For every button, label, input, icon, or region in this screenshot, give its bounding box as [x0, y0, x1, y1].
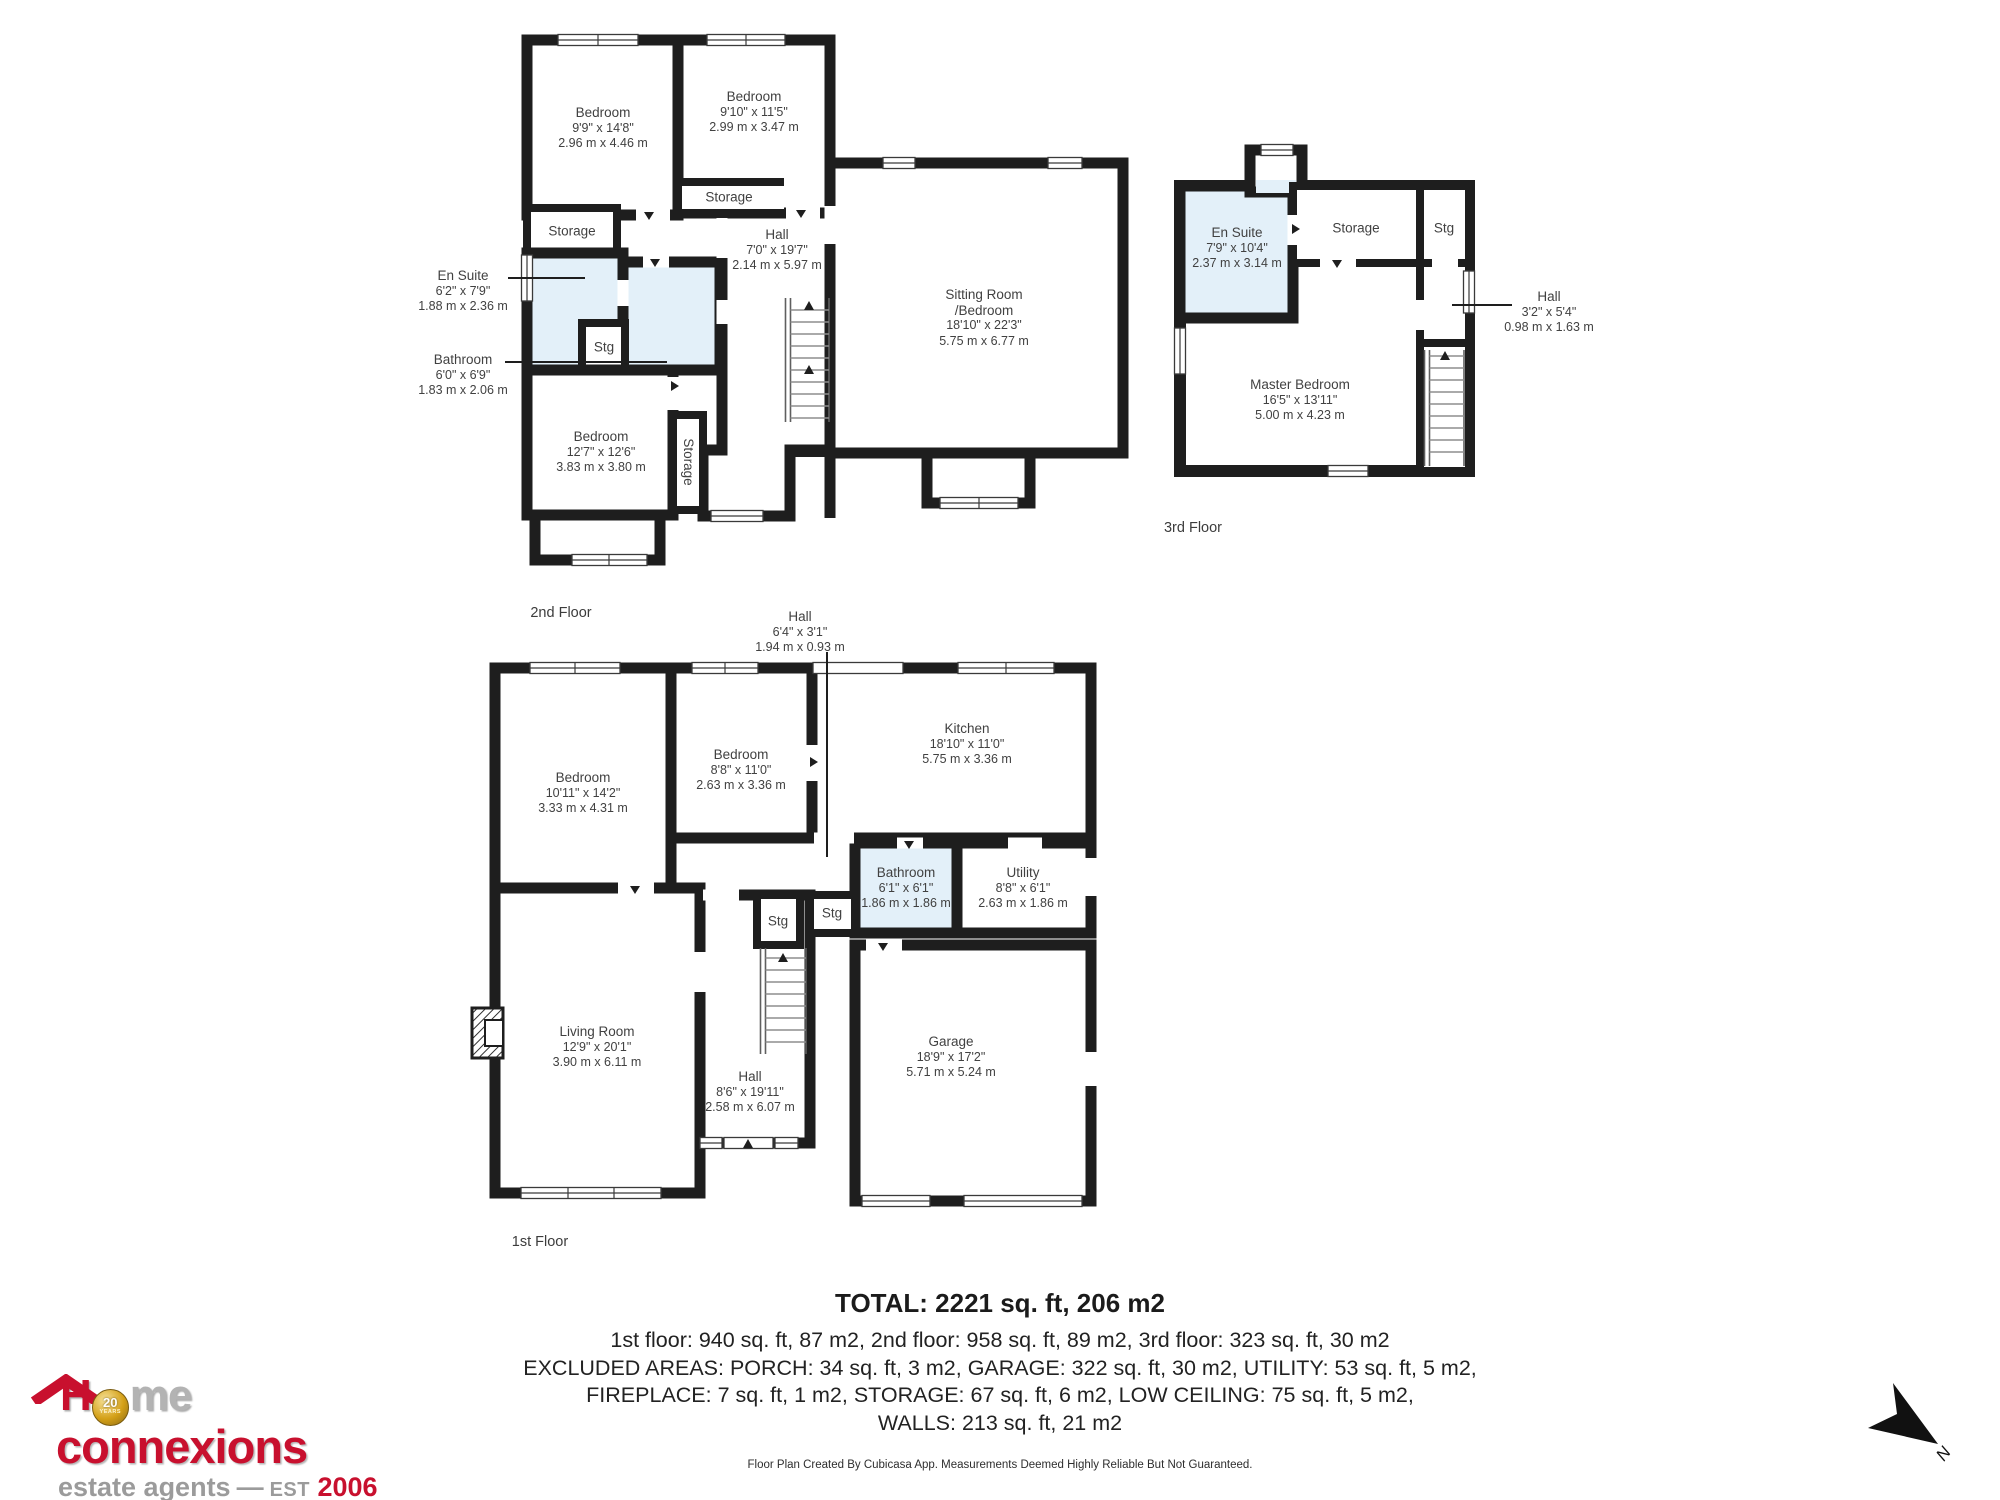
- room-label-f1-hall-upper: Hall 6'4" x 3'1" 1.94 m x 0.93 m: [755, 609, 845, 656]
- room-label-f2-bedroom-top-right: Bedroom 9'10" x 11'5" 2.99 m x 3.47 m: [709, 89, 799, 136]
- floor2-bathroom-room: [623, 262, 720, 370]
- room-label-f2-ensuite: En Suite 6'2" x 7'9" 1.88 m x 2.36 m: [418, 268, 508, 315]
- floor3-hall-room: [1420, 263, 1469, 343]
- room-label-f2-storage-left: Storage: [548, 223, 595, 239]
- room-label-f2-hall: Hall 7'0" x 19'7" 2.14 m x 5.97 m: [732, 227, 822, 274]
- room-label-f2-storage-top: Storage: [705, 189, 752, 205]
- room-label-f3-storage: Storage: [1332, 220, 1379, 236]
- room-label-f2-sitting-room: Sitting Room /Bedroom 18'10" x 22'3" 5.7…: [939, 287, 1029, 349]
- floor-plan-page: N Bedroom 9'9" x 14'8" 2.96 m x 4.46 m B…: [0, 0, 2000, 1500]
- logo-tagline: estate agents—EST 2006: [58, 1473, 388, 1500]
- logo-home-word: H20YEARSme: [60, 1376, 388, 1423]
- floor1-tag: 1st Floor: [512, 1234, 568, 1250]
- summary-total: TOTAL: 2221 sq. ft, 206 m2: [0, 1288, 2000, 1319]
- room-label-f3-hall: Hall 3'2" x 5'4" 0.98 m x 1.63 m: [1504, 289, 1594, 336]
- logo-connexions-word: connexions: [56, 1425, 388, 1469]
- room-label-f2-bedroom-top-left: Bedroom 9'9" x 14'8" 2.96 m x 4.46 m: [558, 105, 648, 152]
- room-label-f2-bedroom-bottom: Bedroom 12'7" x 12'6" 3.83 m x 3.80 m: [556, 429, 646, 476]
- floor2-bedroom-bay: [535, 515, 660, 560]
- agency-logo: H20YEARSme connexions estate agents—EST …: [28, 1376, 388, 1500]
- room-label-f1-living-room: Living Room 12'9" x 20'1" 3.90 m x 6.11 …: [553, 1024, 642, 1071]
- room-label-f2-stg: Stg: [594, 339, 614, 355]
- room-label-f1-hall: Hall 8'6" x 19'11" 2.58 m x 6.07 m: [705, 1069, 795, 1116]
- room-label-f3-master-bedroom: Master Bedroom 16'5" x 13'11" 5.00 m x 4…: [1250, 377, 1350, 424]
- room-label-f1-utility: Utility 8'8" x 6'1" 2.63 m x 1.86 m: [978, 865, 1068, 912]
- room-label-f1-stg-a: Stg: [768, 913, 788, 929]
- 20-years-coin-icon: 20YEARS: [92, 1389, 129, 1426]
- floor2-tag: 2nd Floor: [530, 605, 591, 621]
- floor1-fireplace: [472, 1008, 503, 1058]
- floor2-sitting-bay: [927, 453, 1030, 503]
- room-label-f2-bathroom: Bathroom 6'0" x 6'9" 1.83 m x 2.06 m: [418, 352, 508, 399]
- room-label-f1-bedroom-mid: Bedroom 8'8" x 11'0" 2.63 m x 3.36 m: [696, 747, 786, 794]
- room-label-f1-kitchen: Kitchen 18'10" x 11'0" 5.75 m x 3.36 m: [922, 721, 1012, 768]
- room-label-f1-stg-b: Stg: [822, 905, 842, 921]
- room-label-f3-stg: Stg: [1434, 220, 1454, 236]
- room-label-f1-bathroom: Bathroom 6'1" x 6'1" 1.86 m x 1.86 m: [861, 865, 951, 912]
- room-label-f3-ensuite: En Suite 7'9" x 10'4" 2.37 m x 3.14 m: [1192, 225, 1282, 272]
- room-label-f1-bedroom-left: Bedroom 10'11" x 14'2" 3.33 m x 4.31 m: [538, 770, 628, 817]
- floor3-plan: [1175, 145, 1513, 477]
- floor3-tag: 3rd Floor: [1164, 520, 1222, 536]
- room-label-f1-garage: Garage 18'9" x 17'2" 5.71 m x 5.24 m: [906, 1034, 996, 1081]
- summary-floors: 1st floor: 940 sq. ft, 87 m2, 2nd floor:…: [0, 1327, 2000, 1355]
- room-label-f2-storage-stairs: Storage: [680, 438, 696, 485]
